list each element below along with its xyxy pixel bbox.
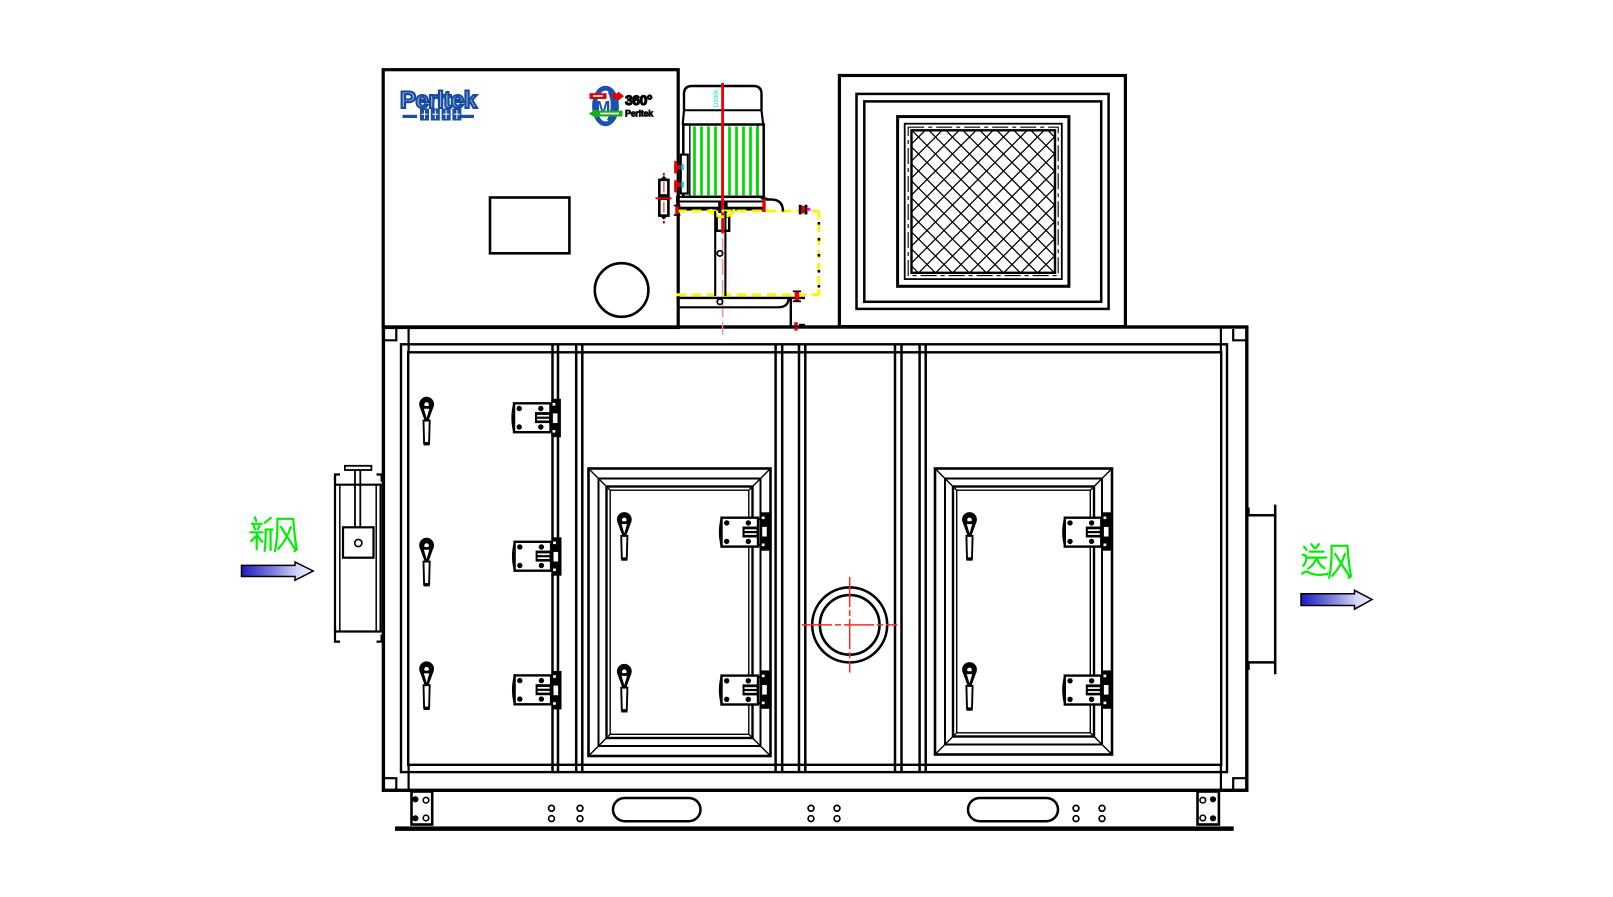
svg-text:Perltek: Perltek: [625, 109, 654, 119]
svg-text:D100L: D100L: [713, 88, 720, 108]
svg-text:360°: 360°: [625, 92, 652, 108]
